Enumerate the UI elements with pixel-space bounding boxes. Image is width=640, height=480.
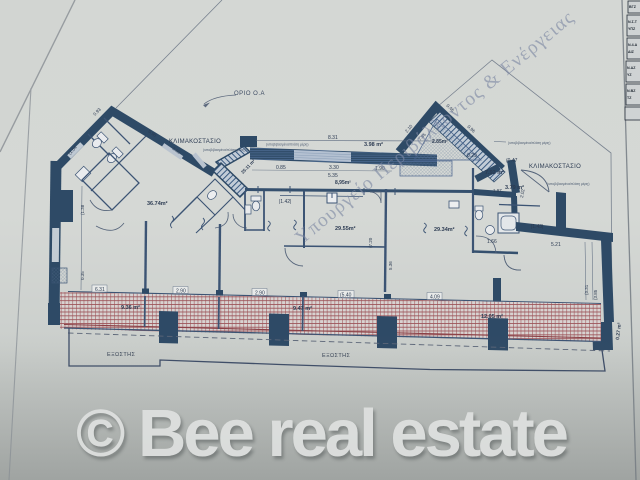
- svg-text:3.98 m²: 3.98 m²: [364, 141, 383, 148]
- svg-text:ΔΙΖ: ΔΙΖ: [628, 50, 635, 54]
- svg-text:(υποβιβασμένα/πλάτη μέρη): (υποβιβασμένα/πλάτη μέρη): [547, 182, 589, 186]
- svg-text:(7.20: (7.20: [368, 237, 373, 248]
- svg-text:6.31: 6.31: [95, 287, 105, 293]
- svg-text:9.36 m²: 9.36 m²: [121, 304, 140, 311]
- svg-text:0.29: 0.29: [467, 153, 477, 159]
- svg-text:0.35: 0.35: [80, 271, 85, 280]
- svg-text:(υποβιβασμένα/πλάτη μέρη): (υποβιβασμένα/πλάτη μέρη): [203, 148, 245, 152]
- svg-text:5.36: 5.36: [388, 261, 393, 270]
- svg-text:3.30: 3.30: [329, 165, 339, 171]
- svg-text:12.05 m²: 12.05 m²: [481, 313, 503, 320]
- svg-text:Ν.ΑΖ: Ν.ΑΖ: [627, 66, 636, 70]
- svg-text:|1.43|: |1.43|: [531, 224, 543, 230]
- svg-text:Ν.ΒΖ: Ν.ΒΖ: [627, 89, 636, 93]
- svg-text:ΚΛΙΜΑΚΟΣΤΑΣΙΟ: ΚΛΙΜΑΚΟΣΤΑΣΙΟ: [529, 164, 581, 170]
- svg-text:ΒΓΖ: ΒΓΖ: [629, 5, 637, 9]
- svg-text:(υποβιβασμένα/πλάτη μέρη): (υποβιβασμένα/πλάτη μέρη): [508, 141, 550, 145]
- svg-text:2.90: 2.90: [255, 291, 265, 297]
- svg-text:0.85: 0.85: [276, 165, 286, 171]
- svg-text:4.09: 4.09: [430, 295, 440, 301]
- svg-text:(0.47: (0.47: [506, 158, 518, 164]
- svg-text:8.31: 8.31: [328, 135, 338, 141]
- svg-text:1.97: 1.97: [493, 188, 502, 193]
- svg-text:2.90: 2.90: [176, 289, 186, 295]
- svg-text:1.66: 1.66: [487, 239, 497, 245]
- svg-text:|1.42|: |1.42|: [279, 199, 291, 205]
- svg-text:29.34m²: 29.34m²: [434, 226, 455, 233]
- svg-text:(υποβιβασμένα/πλάτη μέρη): (υποβιβασμένα/πλάτη μέρη): [266, 143, 308, 147]
- svg-text:(3.31: (3.31: [584, 284, 589, 295]
- svg-text:ΟΡΙΟ Ο.Α: ΟΡΙΟ Ο.Α: [234, 91, 265, 97]
- svg-text:Ν.4.Α: Ν.4.Α: [628, 43, 638, 47]
- svg-text:ΥΖ: ΥΖ: [627, 73, 632, 77]
- svg-text:29.55m²: 29.55m²: [335, 225, 356, 232]
- svg-text:ΚΛΙΜΑΚΟΣΤΑΣΙΟ: ΚΛΙΜΑΚΟΣΤΑΣΙΟ: [169, 139, 221, 145]
- svg-text:5.21: 5.21: [551, 242, 561, 248]
- svg-text:7.92 m²: 7.92 m²: [485, 169, 504, 176]
- svg-text:ΥΠΖ: ΥΠΖ: [628, 27, 636, 31]
- svg-text:Ν.Σ.Τ: Ν.Σ.Τ: [628, 20, 638, 24]
- svg-text:© Bee real estate: © Bee real estate: [76, 396, 567, 471]
- svg-text:(5.40: (5.40: [340, 293, 352, 299]
- svg-text:5.35: 5.35: [328, 173, 338, 179]
- svg-text:36.74m²: 36.74m²: [147, 200, 168, 207]
- svg-text:(1.38: (1.38: [80, 204, 85, 215]
- svg-text:9.47 m²: 9.47 m²: [293, 305, 312, 312]
- svg-text:(3.85: (3.85: [593, 289, 598, 300]
